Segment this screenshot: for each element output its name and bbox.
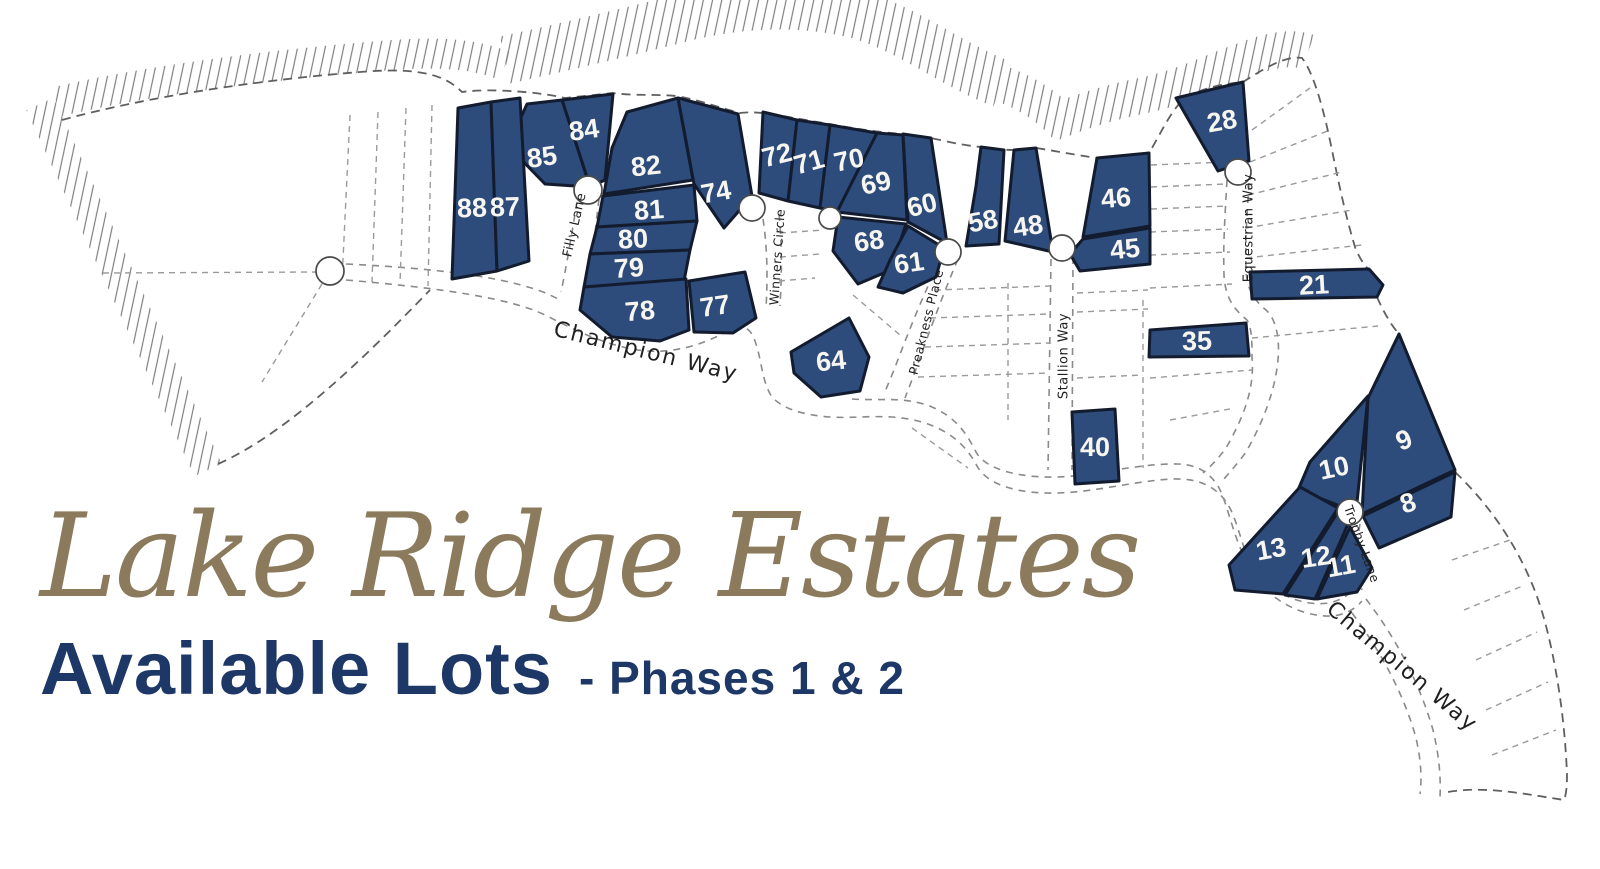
lot-21-label: 21 [1298,269,1330,301]
lot-74-label: 74 [699,175,734,210]
lot-map-page: Filly LaneWinners CirclePreakness PlaceS… [0,0,1600,869]
lot-88[interactable] [452,102,497,279]
lot-46-label: 46 [1100,182,1133,215]
culdesac-stallion-way-end [1049,235,1075,261]
culdesac-champion-way-west-end [316,257,344,285]
lot-61-label: 61 [892,246,926,280]
lot-87-label: 87 [489,191,520,222]
lot-85-label: 85 [525,140,559,174]
culdesac-preakness-place-end [935,239,961,265]
lot-48-label: 48 [1011,209,1045,243]
plat-map: Filly LaneWinners CirclePreakness PlaceS… [0,0,1600,869]
lot-78-label: 78 [624,295,657,328]
lot-88-label: 88 [456,192,487,223]
lot-84-label: 84 [567,113,601,147]
lot-68-label: 68 [852,224,886,258]
lot-28-label: 28 [1205,104,1240,139]
lot-40-label: 40 [1080,432,1110,462]
street-label-stallion-way-3: Stallion Way [1057,313,1072,399]
lot-79-label: 79 [613,252,645,284]
lot-11-label: 11 [1324,549,1357,584]
culdesac-winners-circle-end [739,195,765,221]
street-label-equestrian-way-4: Equestrian Way [1242,174,1257,283]
lot-35-label: 35 [1181,325,1212,356]
lot-45-label: 45 [1108,233,1141,266]
road-stallion-way [1048,259,1051,470]
lot-77-label: 77 [698,289,732,323]
lot-13-label: 13 [1254,532,1289,567]
lot-64-label: 64 [814,345,847,378]
street-label-filly-lane-0: Filly Lane [560,191,589,258]
lot-58-label: 58 [966,204,1001,239]
culdesac-winners-circle-court [819,207,841,229]
lot-80-label: 80 [617,223,649,255]
street-label-champion-way-7: Champion Way [1321,597,1482,738]
lot-10-label: 10 [1316,450,1352,486]
lot-69-label: 69 [858,165,894,201]
lot-82-label: 82 [629,150,662,183]
lot-81-label: 81 [633,194,665,226]
